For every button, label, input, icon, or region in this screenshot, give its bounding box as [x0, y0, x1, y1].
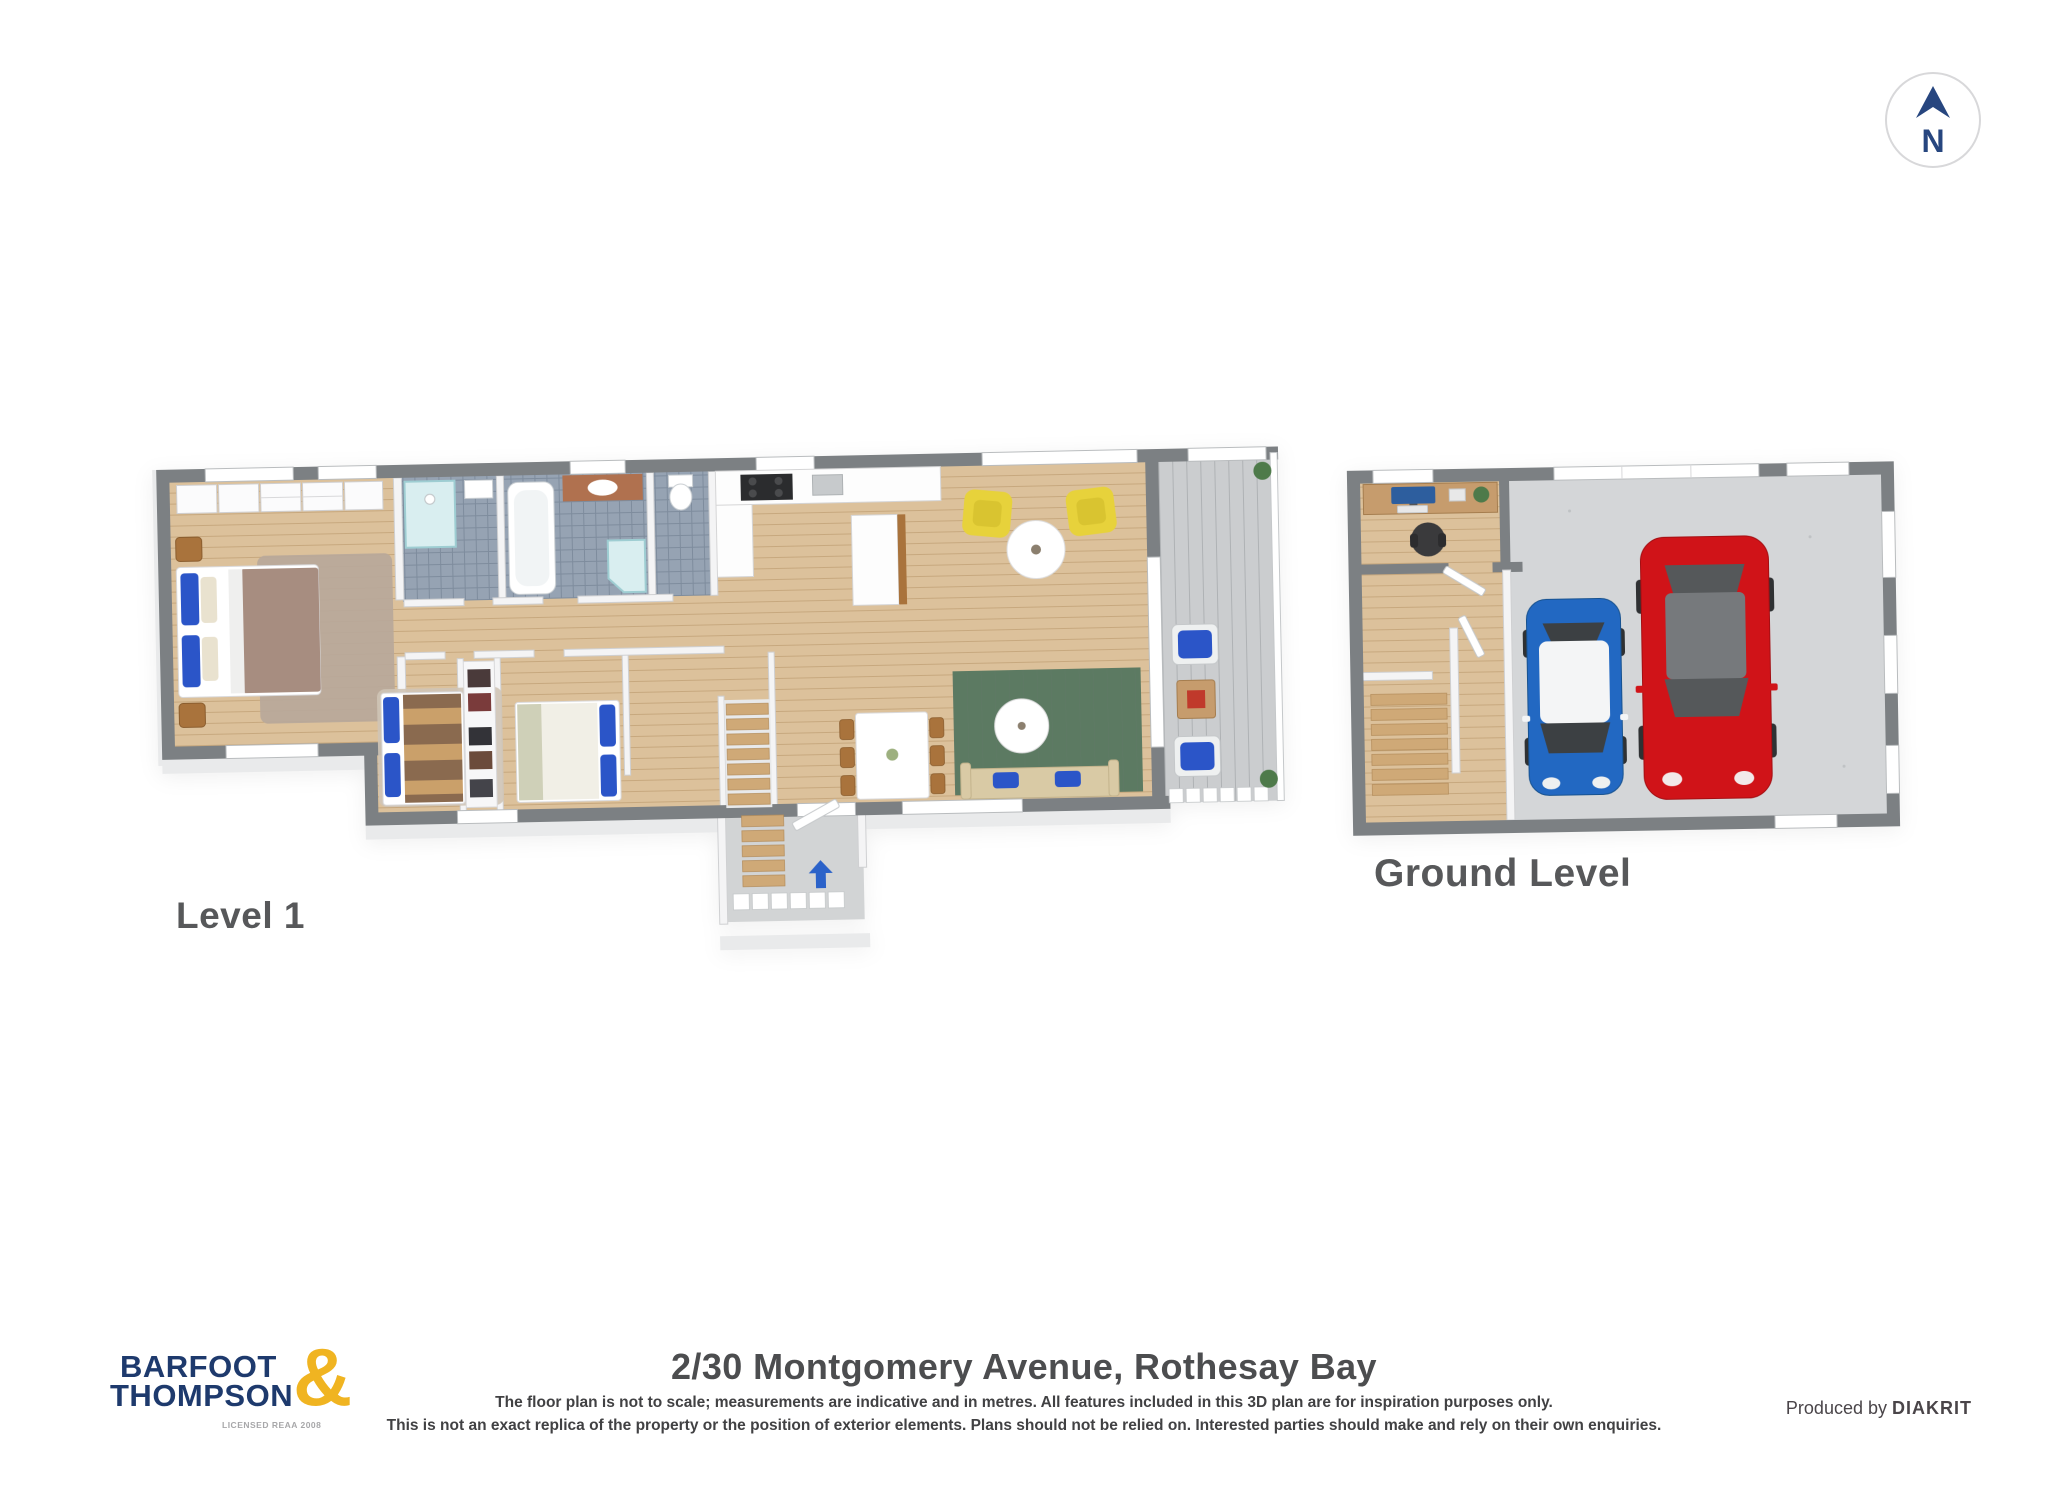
- disclaimer-line-2: This is not an exact replica of the prop…: [0, 1417, 2048, 1435]
- produced-by-credit: Produced by DIAKRIT: [1786, 1398, 1972, 1419]
- compass-n-label: N: [1921, 123, 1944, 159]
- ground-level-label: Ground Level: [1374, 852, 1631, 896]
- red-car: [1633, 535, 1780, 799]
- monitor: [1391, 486, 1435, 504]
- entry-stairs: [742, 815, 785, 887]
- ensuite-vanity: [464, 480, 492, 499]
- bedroom-3: [515, 700, 621, 802]
- compass-north-arrow-icon: [1916, 86, 1950, 118]
- deck-side-table: [1177, 680, 1216, 719]
- master-wardrobes: [176, 481, 383, 513]
- bedroom3-bed: [515, 700, 621, 802]
- property-address-title: 2/30 Montgomery Avenue, Rothesay Bay: [0, 1346, 2048, 1388]
- level1-floorplan: [150, 426, 1311, 965]
- wc: [668, 475, 693, 510]
- keyboard: [1397, 505, 1427, 513]
- producer-name: DIAKRIT: [1892, 1398, 1972, 1418]
- ground-floorplan: [1339, 445, 1916, 855]
- cooktop: [740, 474, 793, 501]
- blue-car: [1520, 598, 1629, 796]
- produced-by-text: Produced by: [1786, 1398, 1892, 1418]
- master-bed: [176, 565, 321, 698]
- bedroom2-bed: [381, 692, 465, 806]
- wardrobe-closet: [463, 661, 497, 808]
- disclaimer-line-1: The floor plan is not to scale; measurem…: [0, 1394, 2048, 1412]
- toilet: [670, 484, 693, 510]
- living-area: [953, 667, 1144, 799]
- shower: [404, 481, 455, 548]
- staircase: [724, 699, 772, 808]
- compass: N: [1885, 72, 1981, 168]
- kitchen-sink: [812, 475, 842, 496]
- level1-label: Level 1: [176, 895, 305, 937]
- floorplan-page: N: [0, 0, 2048, 1494]
- kitchen-island: [851, 514, 907, 605]
